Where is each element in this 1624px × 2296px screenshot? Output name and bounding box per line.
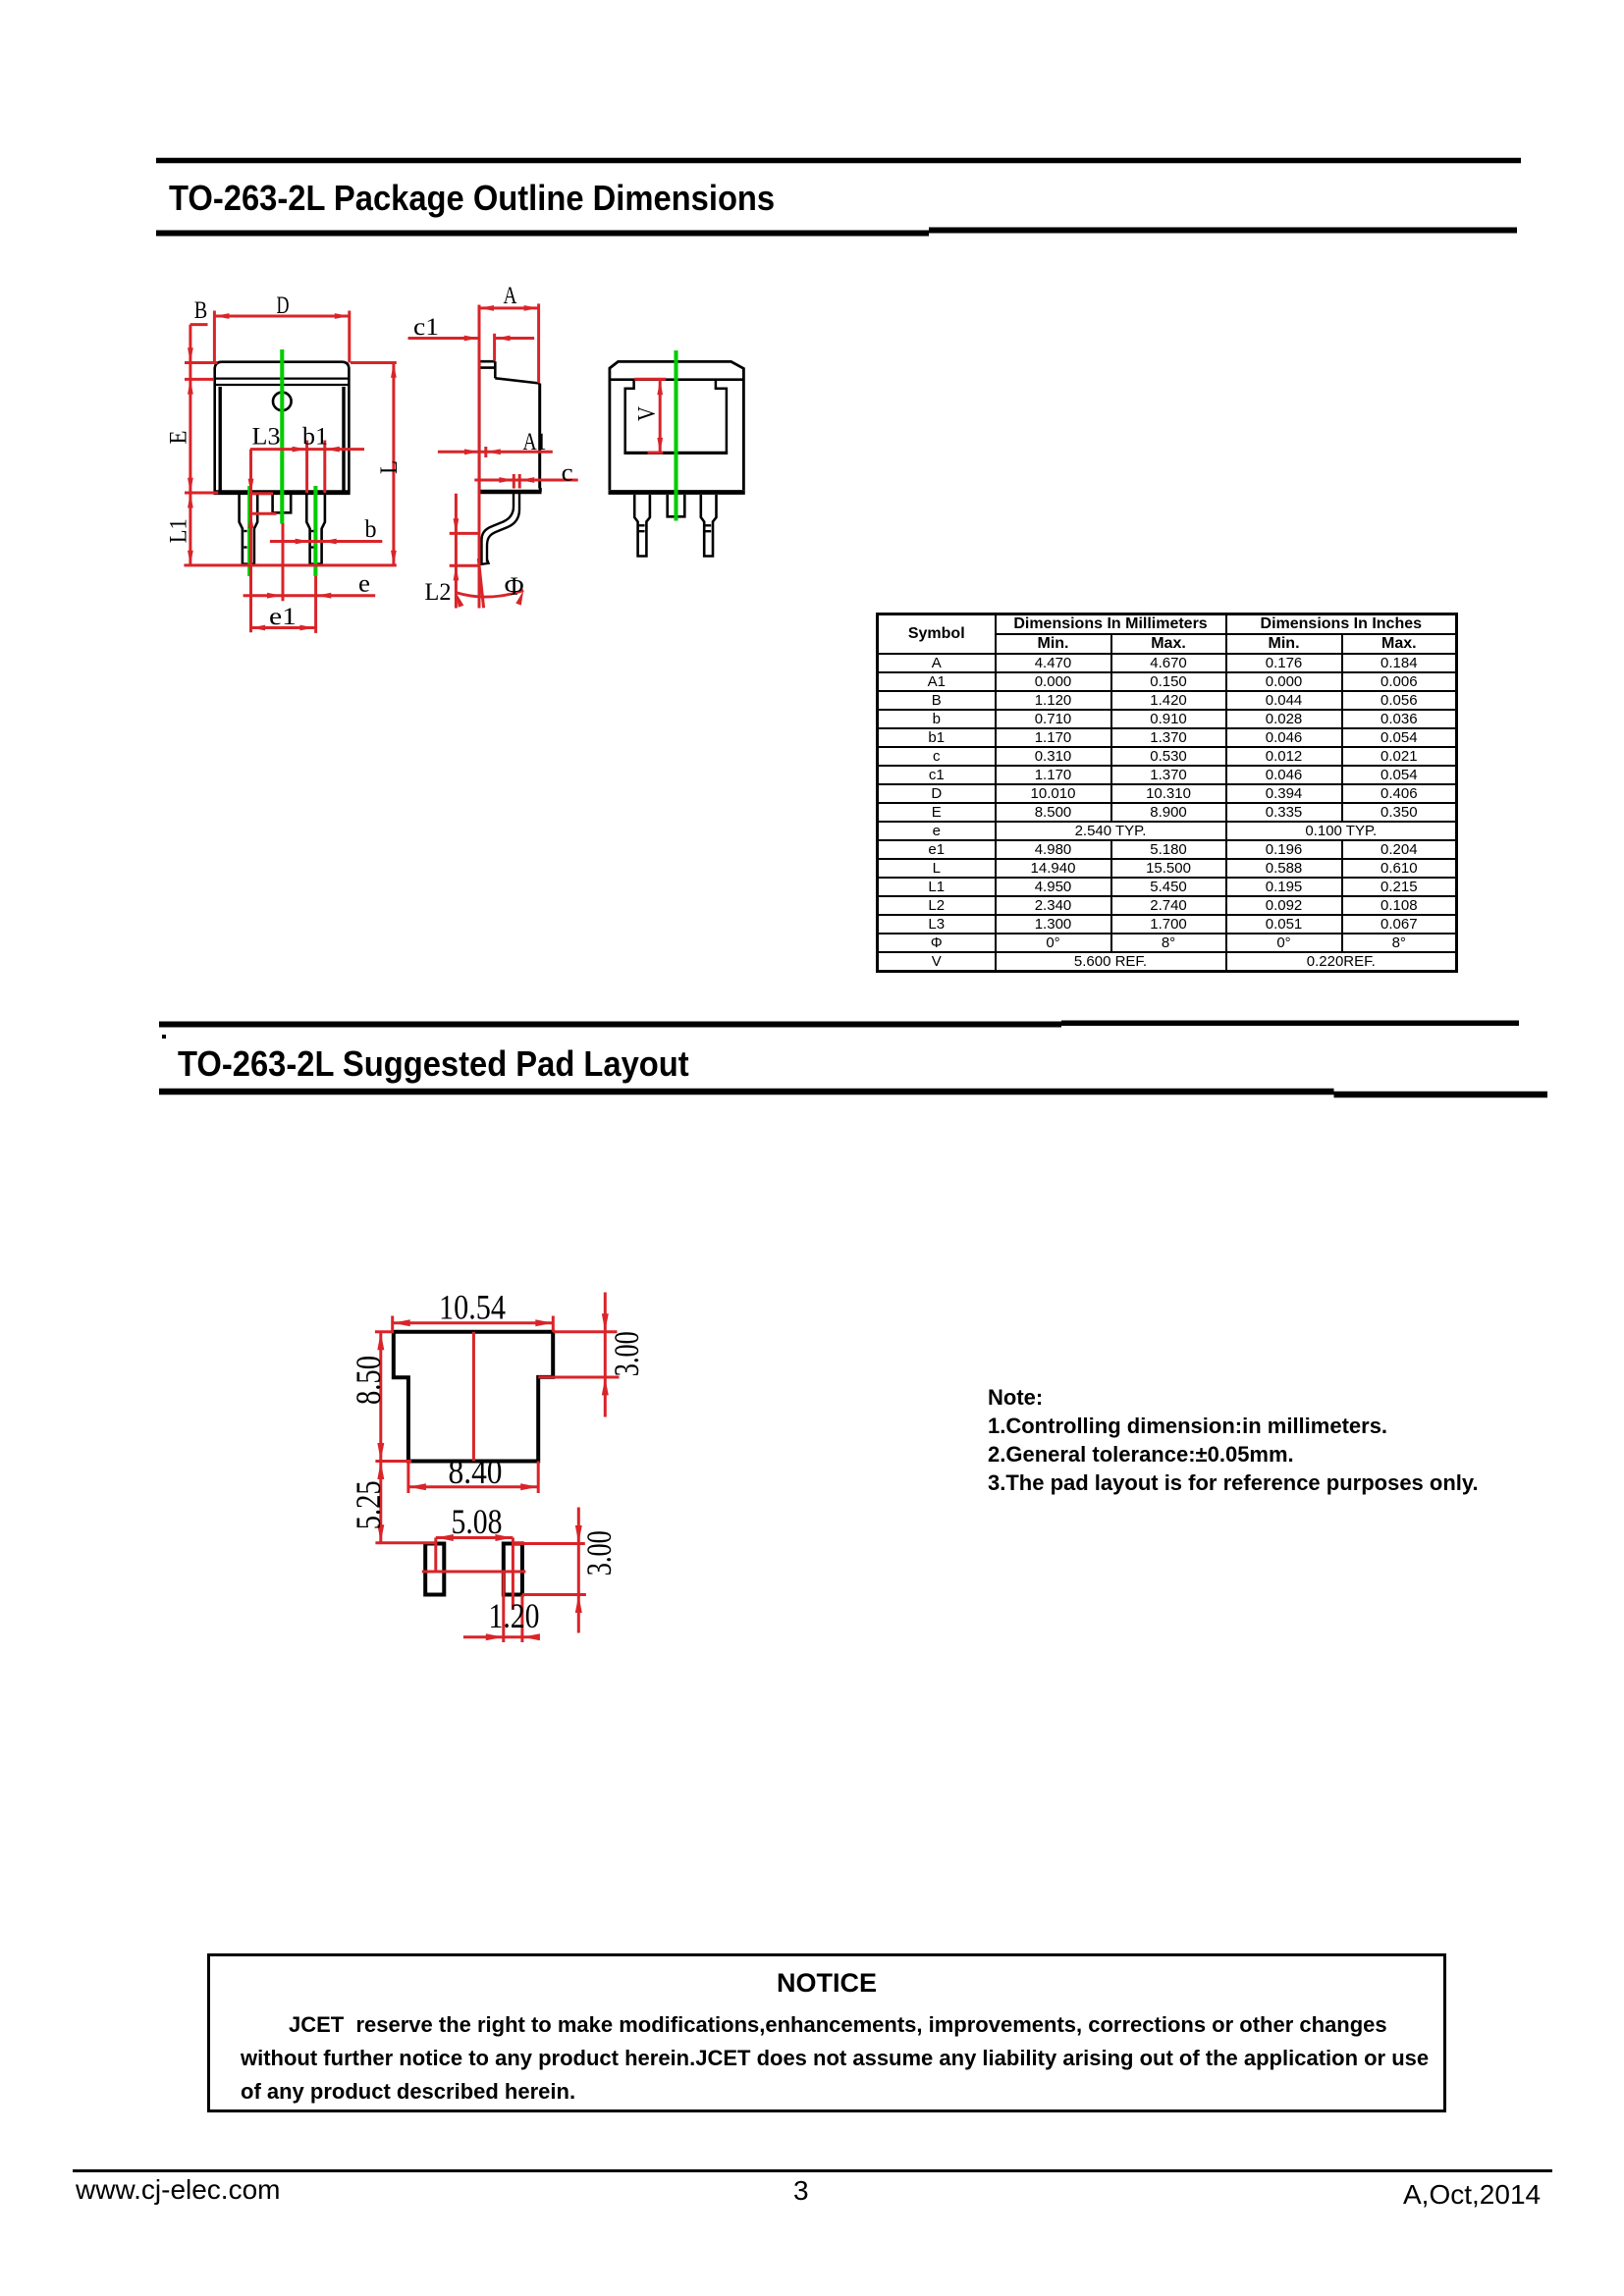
svg-text:10.54: 10.54 [439, 1288, 506, 1327]
svg-text:3.00: 3.00 [579, 1530, 619, 1575]
svg-text:8.50: 8.50 [349, 1356, 388, 1405]
svg-text:A1: A1 [523, 429, 547, 455]
svg-text:V: V [634, 406, 661, 421]
svg-text:8.40: 8.40 [449, 1452, 503, 1491]
svg-text:b: b [365, 516, 377, 543]
svg-text:D: D [277, 293, 290, 319]
svg-text:1.20: 1.20 [489, 1596, 540, 1635]
svg-text:Φ: Φ [505, 572, 524, 601]
svg-text:b1: b1 [302, 424, 328, 451]
svg-text:e: e [358, 571, 370, 598]
svg-text:L1: L1 [166, 518, 192, 543]
svg-text:A: A [504, 283, 517, 309]
svg-text:c: c [562, 460, 573, 487]
svg-text:5.25: 5.25 [349, 1480, 388, 1529]
svg-text:E: E [166, 431, 192, 445]
svg-text:5.08: 5.08 [452, 1502, 503, 1541]
svg-text:c1: c1 [413, 314, 439, 341]
svg-text:L2: L2 [425, 579, 452, 606]
svg-text:L3: L3 [252, 424, 281, 451]
svg-text:3.00: 3.00 [607, 1331, 646, 1376]
svg-text:B: B [194, 297, 208, 324]
svg-text:L: L [376, 460, 403, 474]
svg-text:e1: e1 [269, 604, 297, 630]
